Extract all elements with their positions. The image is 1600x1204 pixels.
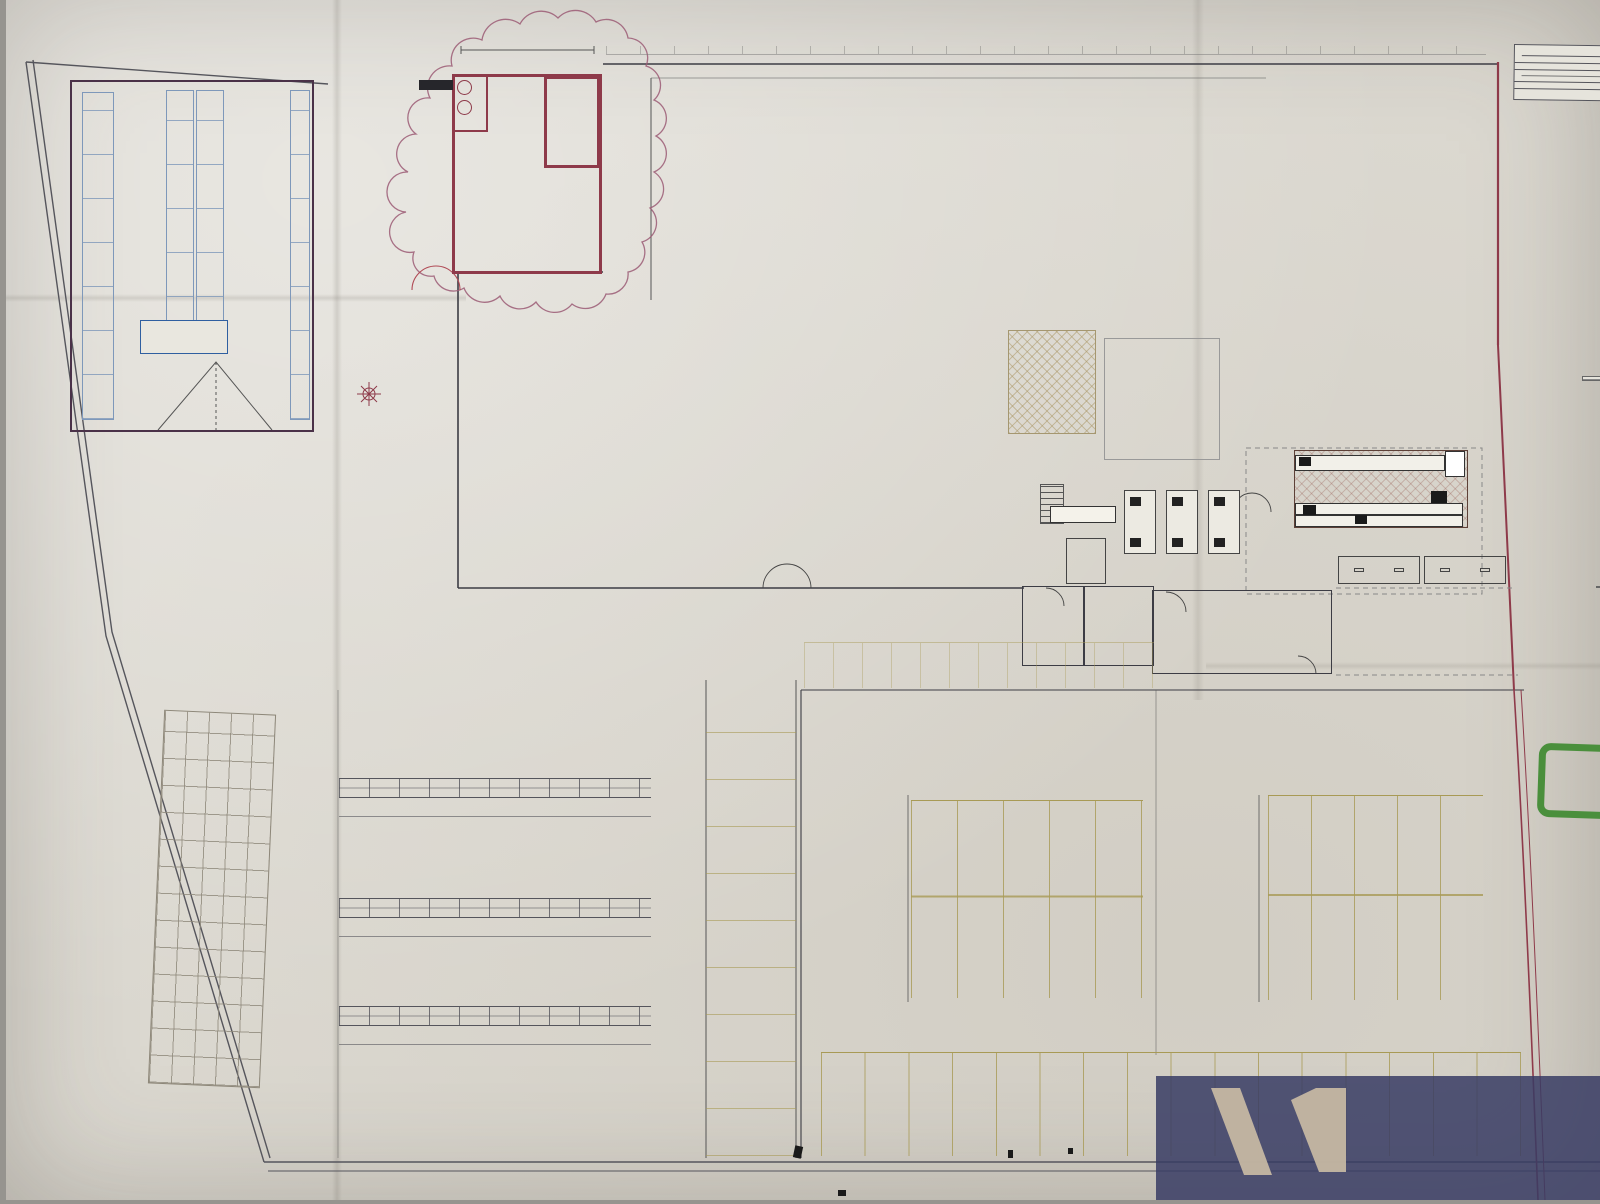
podium-hatch-area <box>1008 330 1096 434</box>
north-symbol <box>357 382 381 406</box>
parking-blockA <box>911 800 1143 998</box>
pergola-row <box>339 898 651 918</box>
legend-mini-table <box>1582 376 1600 381</box>
reserve-rack <box>290 90 310 420</box>
legend-letter-table <box>1596 586 1600 588</box>
pp-row <box>1295 503 1463 515</box>
pergola-row <box>339 778 651 798</box>
location-materiels-room <box>1066 538 1106 584</box>
sas-room <box>1152 590 1332 674</box>
dark-wall-segment <box>419 80 453 90</box>
checkout-till <box>1124 490 1156 554</box>
legend-panel <box>1513 44 1600 102</box>
aspiration-room <box>452 74 488 132</box>
reserve-label <box>140 320 228 354</box>
monnereau-logo-mark <box>1156 1076 1600 1200</box>
pergola-bar <box>339 936 651 943</box>
pp-row <box>1295 515 1463 527</box>
legend-total-podiums <box>1514 81 1600 91</box>
legend-total-lineaire <box>1515 62 1600 72</box>
pergola-bar <box>339 1044 651 1051</box>
legend-divers-title <box>1522 75 1600 78</box>
reserve-rack <box>166 90 194 342</box>
monnereau-watermark <box>1156 1076 1600 1200</box>
pp-row <box>1295 455 1445 471</box>
legend-title <box>1522 50 1600 58</box>
espace-carte-box <box>1050 506 1116 523</box>
parking-blockB <box>1268 795 1483 1000</box>
reserve-rack <box>196 90 224 342</box>
espace-decoration-block <box>1294 450 1468 528</box>
dimension-ticks <box>606 46 1486 55</box>
mrb-heart-logo <box>1537 743 1600 820</box>
tc-box <box>1445 451 1465 477</box>
checkout-till <box>1208 490 1240 554</box>
promo-area <box>1104 338 1220 460</box>
zone-expo-strip <box>706 686 796 1156</box>
sav-room <box>544 76 600 168</box>
floor-plan-photo <box>6 0 1600 1200</box>
reserve-rack <box>82 92 114 420</box>
dem-box <box>1424 556 1506 584</box>
exterior-grid-104 <box>148 710 276 1089</box>
pergola-bar <box>339 816 651 823</box>
parking-row0-stalls <box>804 642 1154 688</box>
checkout-till <box>1166 490 1198 554</box>
pergola-row <box>339 1006 651 1026</box>
dem-box <box>1338 556 1420 584</box>
